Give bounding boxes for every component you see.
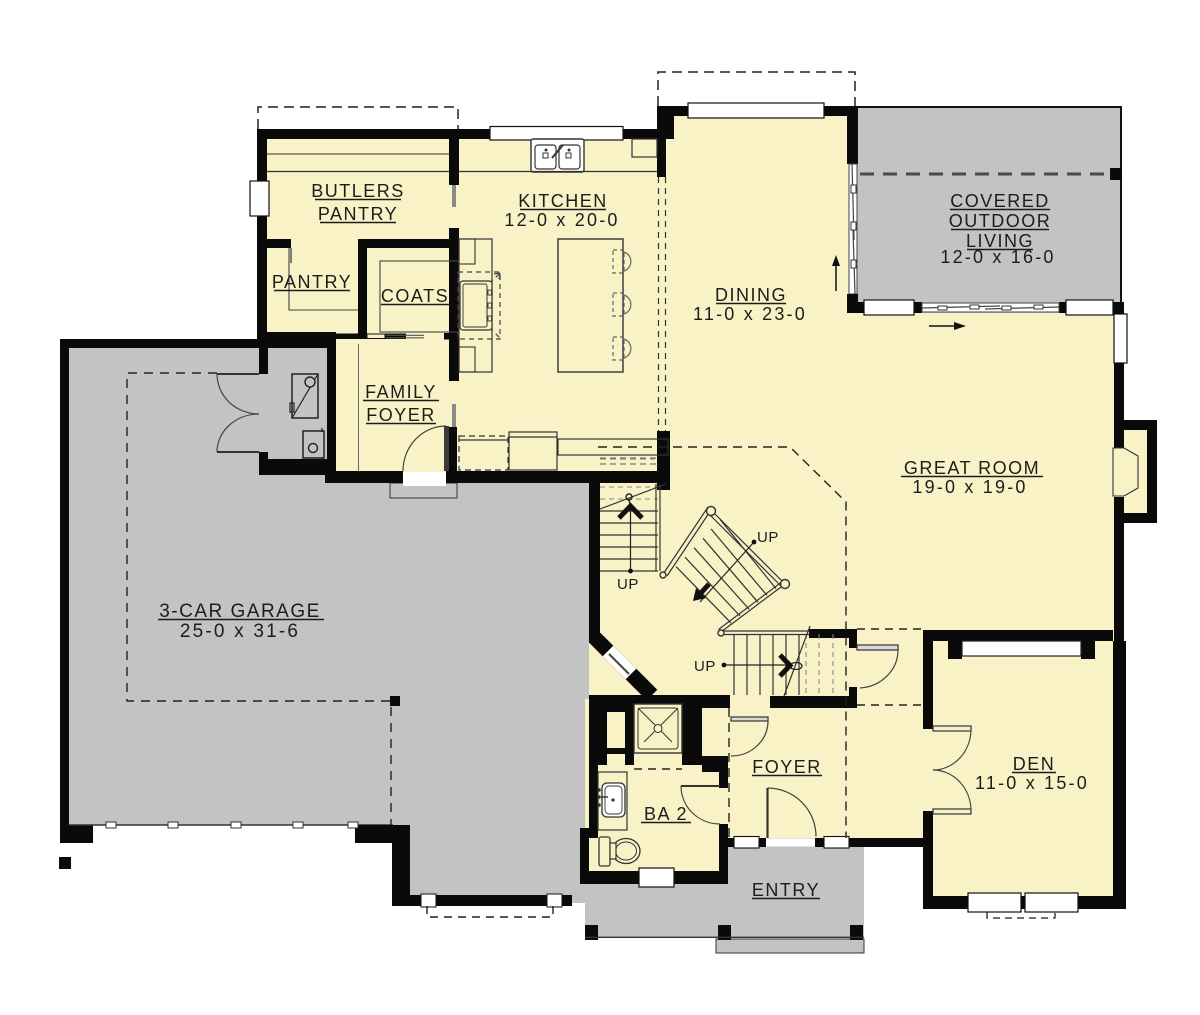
svg-text:PANTRY: PANTRY [272, 272, 352, 292]
svg-text:ENTRY: ENTRY [752, 880, 820, 900]
svg-text:GREAT ROOM: GREAT ROOM [904, 458, 1040, 478]
svg-text:FAMILY: FAMILY [365, 382, 437, 402]
svg-text:UP: UP [757, 529, 779, 546]
svg-text:UP: UP [694, 658, 716, 675]
svg-text:FOYER: FOYER [366, 405, 436, 425]
svg-text:COVERED: COVERED [950, 191, 1050, 211]
svg-text:12-0 x 20-0: 12-0 x 20-0 [504, 210, 619, 230]
svg-text:PANTRY: PANTRY [318, 204, 398, 224]
svg-text:UP: UP [617, 576, 639, 593]
svg-text:FOYER: FOYER [752, 757, 822, 777]
svg-text:19-0 x 19-0: 19-0 x 19-0 [912, 477, 1027, 497]
svg-text:BA 2: BA 2 [644, 804, 688, 824]
svg-text:BUTLERS: BUTLERS [311, 181, 405, 201]
svg-text:11-0 x 15-0: 11-0 x 15-0 [975, 773, 1089, 793]
svg-text:DINING: DINING [715, 285, 787, 305]
svg-text:OUTDOOR: OUTDOOR [949, 211, 1052, 231]
svg-text:DEN: DEN [1013, 754, 1056, 774]
svg-text:KITCHEN: KITCHEN [518, 191, 608, 211]
svg-text:COATS: COATS [381, 286, 449, 306]
svg-text:25-0 x 31-6: 25-0 x 31-6 [180, 621, 300, 642]
svg-text:11-0 x 23-0: 11-0 x 23-0 [693, 304, 807, 324]
